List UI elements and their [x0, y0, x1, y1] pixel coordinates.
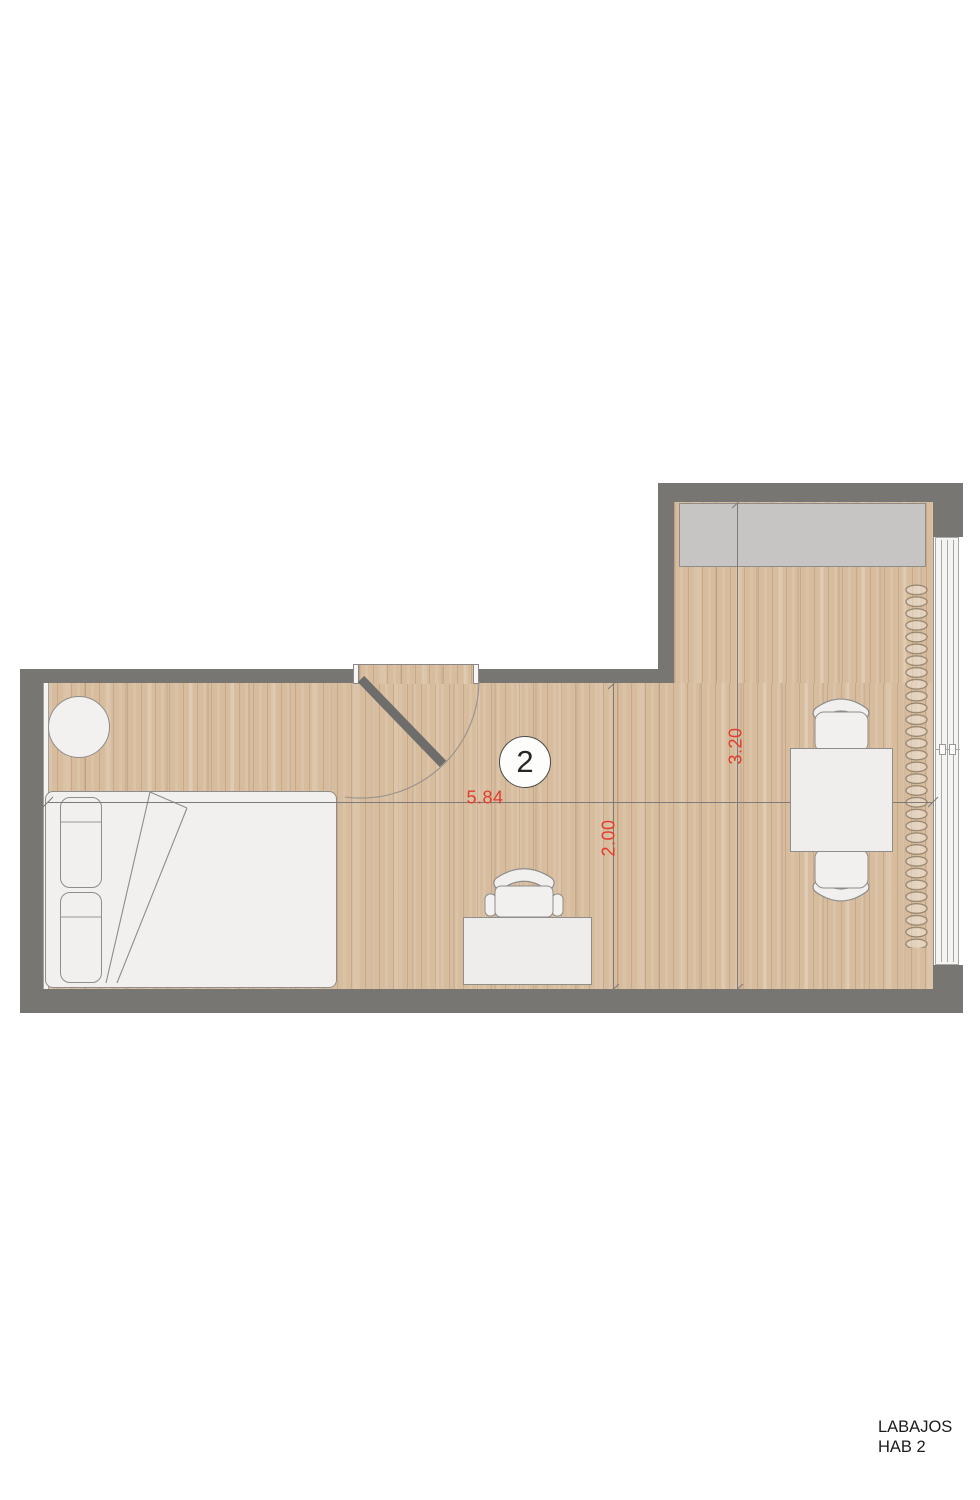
dimension-label-depth-left: 2.00 [599, 819, 620, 856]
floor-plan-page: 2 5.84 2.00 3.20 LABAJOS HAB 2 [0, 0, 980, 1500]
desk-chair-seat [495, 886, 553, 917]
dimension-label-width: 5.84 [466, 788, 503, 809]
desk-chair-armrest-right [552, 894, 563, 916]
door-swing-arc [345, 681, 479, 798]
dining-chair-top-seat [815, 712, 868, 752]
dining-chair-bottom-seat [815, 849, 868, 888]
blanket-fold [106, 792, 187, 983]
desk [463, 917, 592, 985]
title-room-name: HAB 2 [878, 1437, 952, 1457]
title-block: LABAJOS HAB 2 [878, 1417, 952, 1457]
room-number: 2 [516, 744, 533, 780]
title-project-name: LABAJOS [878, 1417, 952, 1437]
door-leaf [358, 676, 446, 767]
room-number-badge: 2 [499, 736, 551, 788]
curtain-coil [905, 584, 928, 948]
pillow-seam-lines [61, 822, 101, 917]
desk-chair-armrest-left [485, 894, 496, 916]
dining-table [790, 748, 893, 852]
dimension-label-depth-right: 3.20 [726, 727, 747, 764]
